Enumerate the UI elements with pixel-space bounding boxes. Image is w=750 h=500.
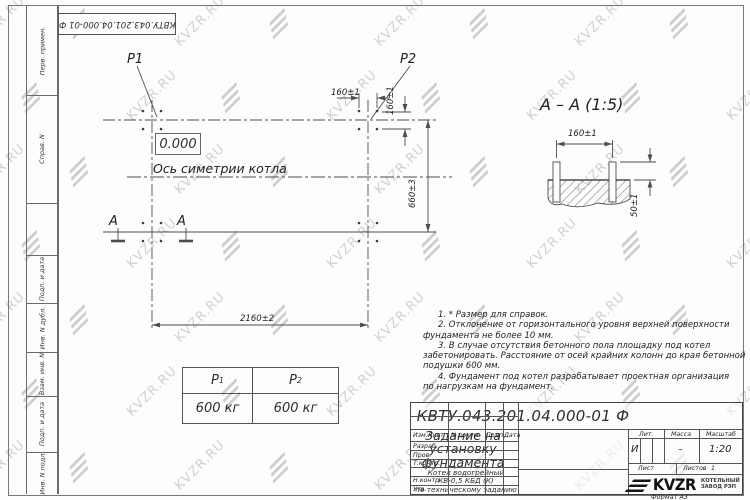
section-stud-left	[553, 162, 560, 202]
tb-mass-value: –	[678, 444, 683, 455]
symmetry-axis-caption: Ось симетрии котла	[153, 161, 287, 176]
tb-lit-value: И	[631, 444, 638, 455]
tb-row-prov: Пров.	[413, 452, 431, 459]
tb-col-izm-list: Изм.Лист	[413, 432, 444, 439]
tb-sheet-label: Лист	[638, 465, 654, 472]
tb-row-razrab: Разраб.	[413, 443, 438, 450]
notes-block: 1. * Размер для справок. 2. Отклонение о…	[423, 310, 741, 392]
p1-leader-line	[137, 66, 157, 117]
tb-scale-value: 1:20	[709, 444, 731, 455]
p2-label: P2	[400, 52, 416, 67]
dim-660-text: 660±3	[408, 179, 418, 208]
tb-sheets-label: Листов	[683, 465, 707, 472]
section-dim50-text: 50±1	[630, 194, 640, 217]
tb-scale-label: Масштаб	[706, 431, 736, 438]
note-3-cont2: подушки 600 мм.	[423, 361, 741, 371]
note-2-cont: фундамента не более 10 мм.	[423, 331, 741, 341]
tb-lit-label: Лит.	[639, 431, 654, 438]
drawing-sheet: KVZR.RUKVZR.RUKVZR.RUKVZR.RUKVZR.RUKVZR.…	[0, 0, 750, 500]
tb-col-n-dokum: N докум.	[451, 432, 480, 439]
section-letter-left: А	[109, 214, 118, 229]
tb-row-nkontr: Н.контр.	[413, 477, 441, 484]
tb-col-podp: Подп.	[486, 432, 505, 439]
dim-2160-text: 2160±2	[240, 314, 274, 324]
kvzr-logo-caption: КОТЕЛЬНЫЙ ЗАВОД РЭП	[701, 478, 740, 490]
dim-160-top-text: 160±1	[331, 88, 360, 98]
note-4-cont: по нагрузкам на фундамент.	[423, 382, 741, 392]
load-table-value-p1: 600 кг	[183, 394, 253, 423]
p1-label: P1	[127, 52, 143, 67]
note-1: 1. * Размер для справок.	[423, 310, 741, 320]
load-table-header-p2: P2	[253, 368, 338, 394]
section-view-title: А – А (1:5)	[540, 95, 623, 114]
format-label: Формат А3	[651, 493, 688, 500]
tb-mass-label: Масса	[671, 431, 691, 438]
dim-160-right-text: 160±1	[386, 86, 396, 115]
section-dim160-text: 160±1	[568, 129, 597, 139]
load-table-header-p1: P1	[183, 368, 253, 394]
level-mark-box: 0.000	[155, 133, 201, 155]
level-mark-value: 0.000	[159, 137, 196, 152]
title-block: Изм.Лист N докум. Подп. Дата Разраб. Про…	[410, 402, 743, 495]
tb-row-tkontr: Т.контр.	[413, 460, 440, 467]
load-table-value-p2: 600 кг	[253, 394, 338, 423]
load-table: P1 P2 600 кг 600 кг	[182, 367, 339, 424]
section-letter-right: А	[177, 214, 186, 229]
note-3: 3. В случае отсутствия бетонного пола пл…	[423, 341, 741, 351]
tb-row-utv: Утв.	[413, 486, 426, 493]
tb-col-data: Дата	[504, 432, 520, 439]
note-2: 2. Отклонение от горизонтального уровня …	[423, 320, 741, 330]
kvzr-logo-icon	[625, 477, 654, 492]
note-3-cont: забетонировать. Расстояние от осей крайн…	[423, 351, 741, 361]
tb-sheets-value: 1	[711, 465, 715, 472]
kvzr-logo-text: KVZR	[653, 475, 696, 494]
tb-logo-cell: KVZR КОТЕЛЬНЫЙ ЗАВОД РЭП	[628, 474, 742, 494]
note-4: 4. Фундамент под котел разрабатывает про…	[423, 372, 741, 382]
section-stud-right	[609, 162, 616, 202]
